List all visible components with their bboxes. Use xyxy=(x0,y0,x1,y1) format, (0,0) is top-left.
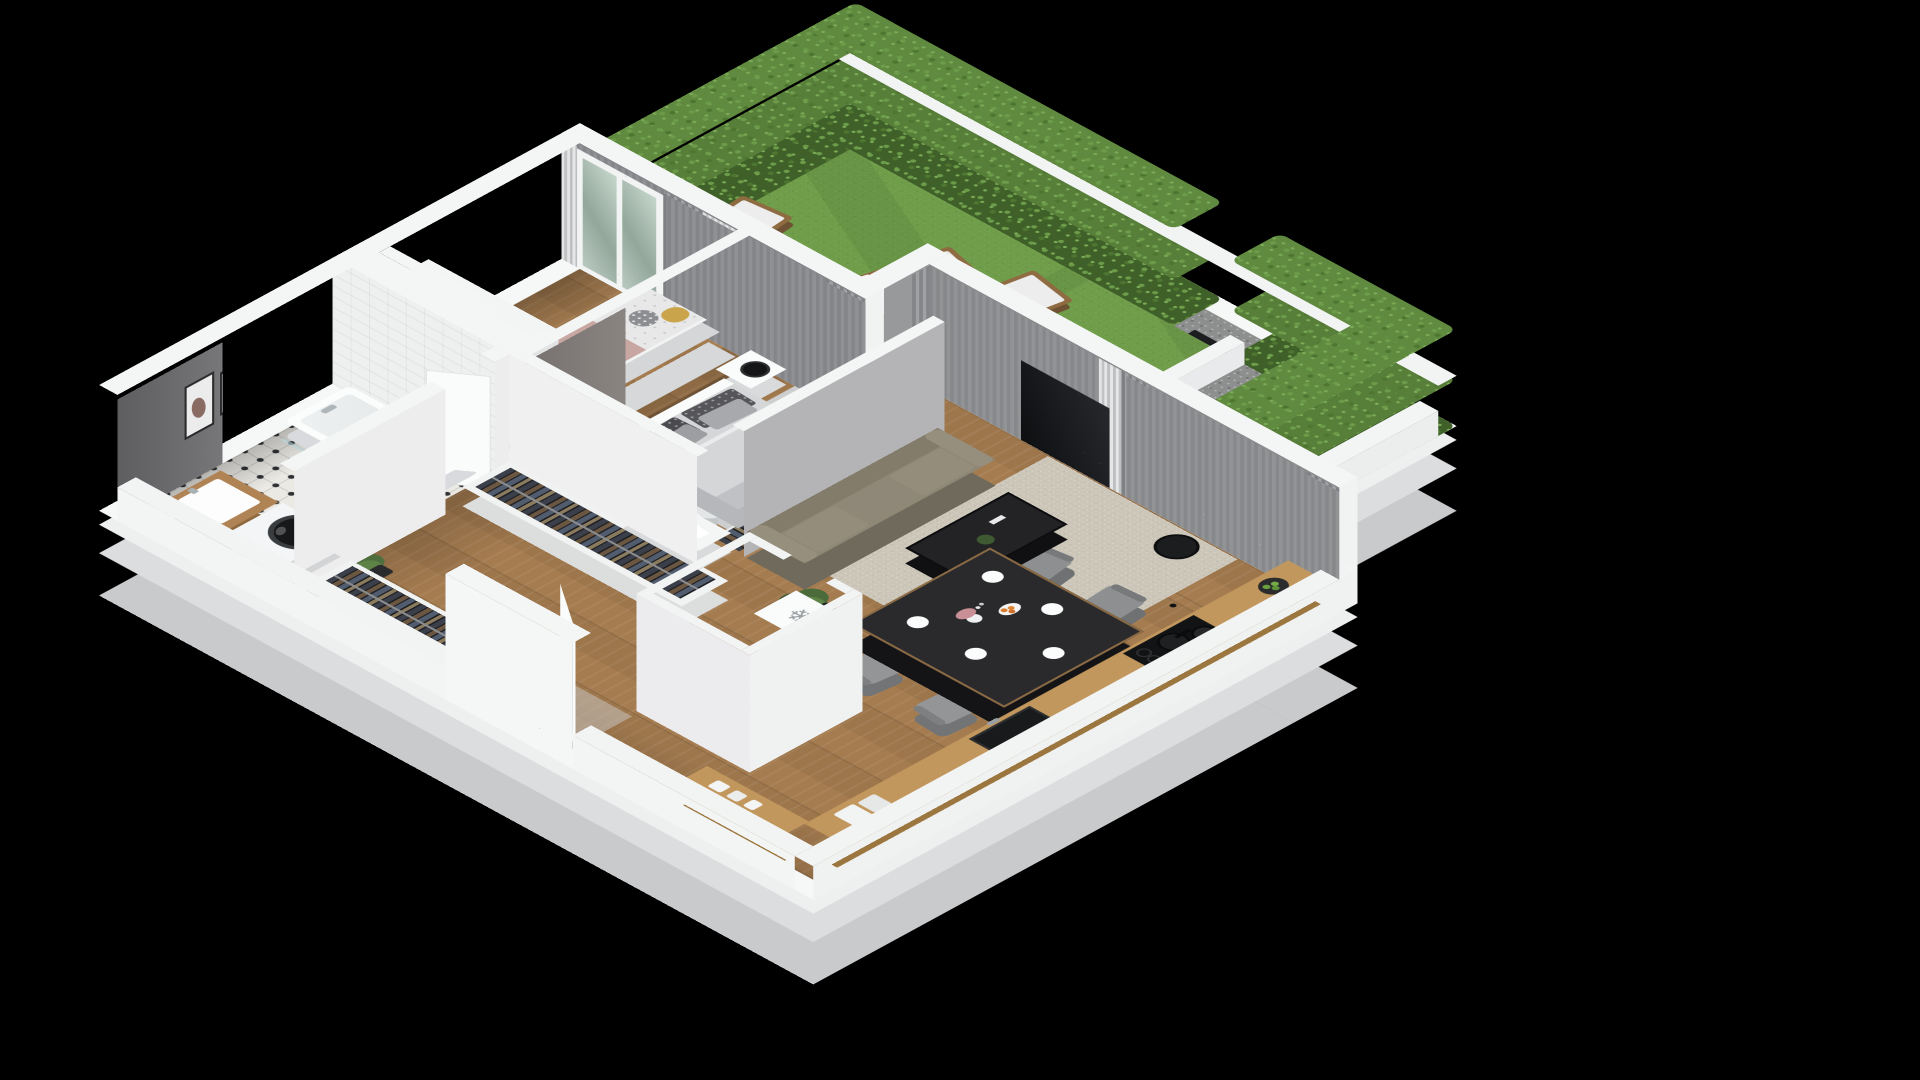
door-glass xyxy=(583,158,617,284)
plate xyxy=(902,614,933,631)
plate xyxy=(1037,601,1068,618)
scene-background: ❄ xyxy=(0,0,1920,1080)
table-lamp xyxy=(734,358,776,381)
apartment-plot: ❄ xyxy=(99,99,1591,912)
plate xyxy=(960,645,991,662)
green-apple xyxy=(1270,585,1281,591)
plate xyxy=(977,568,1008,585)
plate xyxy=(1038,645,1069,662)
remote xyxy=(989,515,1007,525)
table-plant xyxy=(973,533,998,547)
